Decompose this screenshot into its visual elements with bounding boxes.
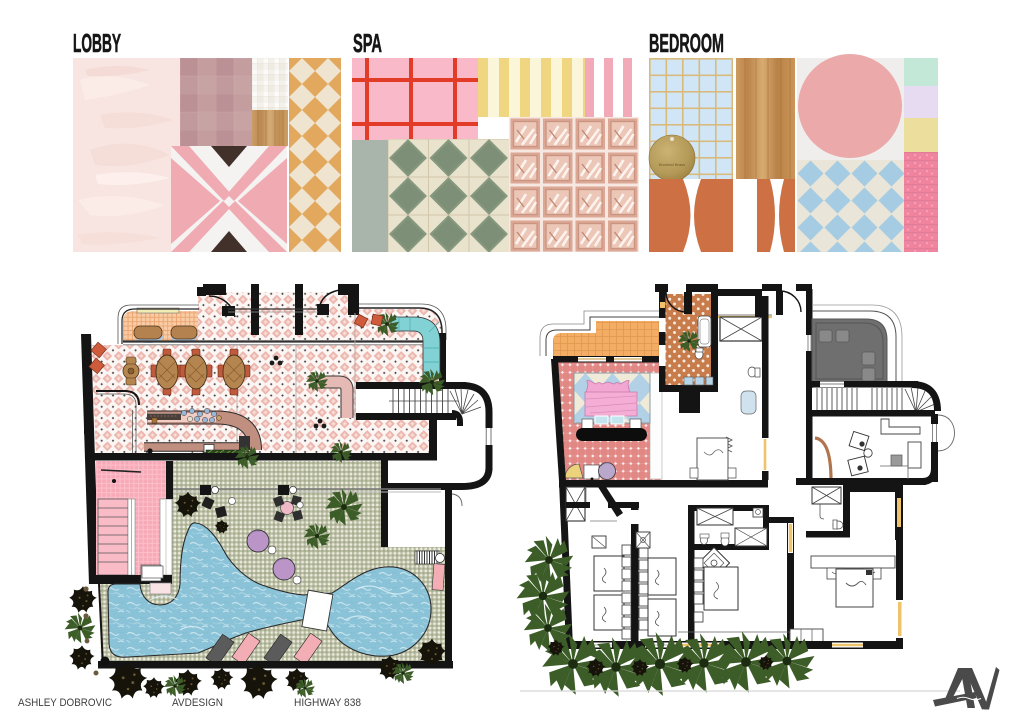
svg-text:Brushed Brass: Brushed Brass (659, 162, 685, 167)
svg-text:HIGHWAY 838: HIGHWAY 838 (294, 697, 361, 709)
svg-text:AVDESIGN: AVDESIGN (172, 697, 223, 709)
svg-text:ASHLEY DOBROVIC: ASHLEY DOBROVIC (18, 697, 112, 709)
svg-text:BEDROOM: BEDROOM (649, 28, 724, 58)
svg-text:LOBBY: LOBBY (73, 28, 121, 58)
svg-text:SPA: SPA (353, 28, 382, 58)
